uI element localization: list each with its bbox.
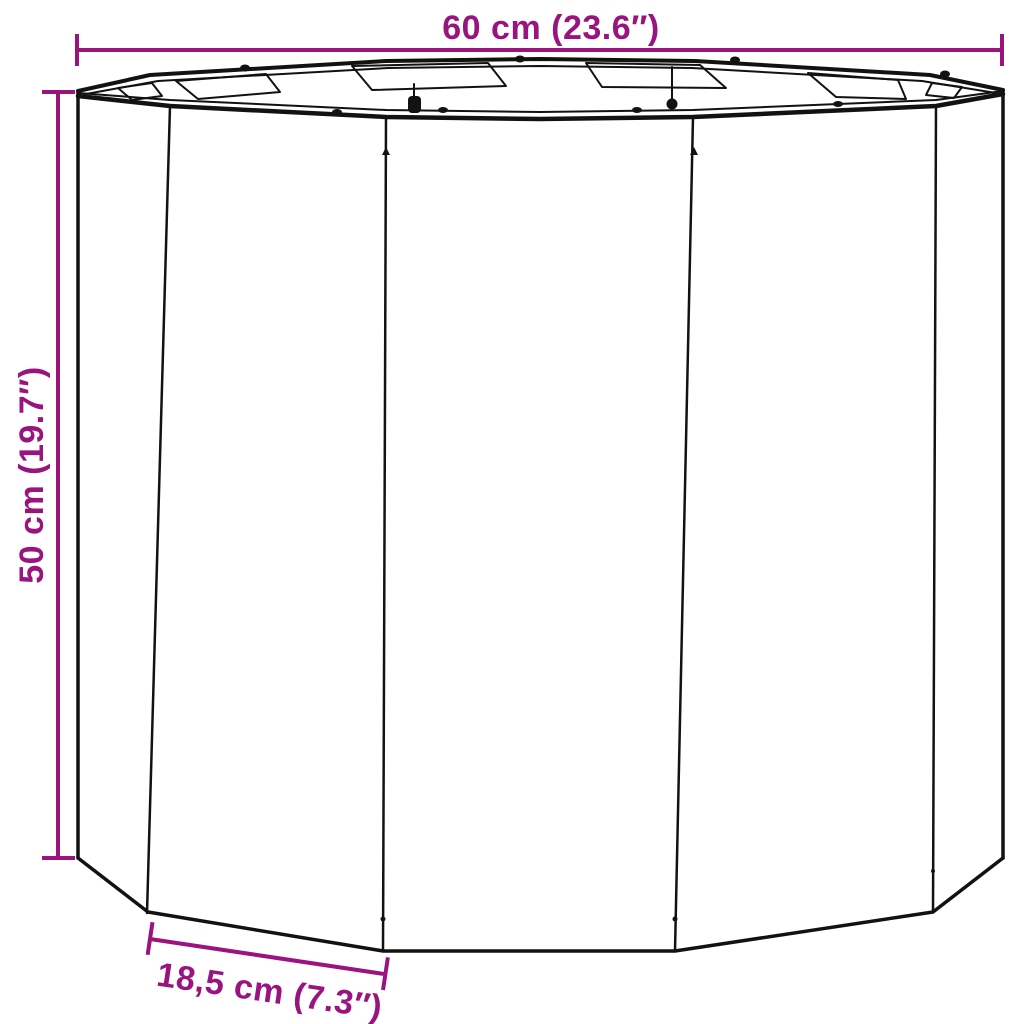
wing-bolt [667,99,678,110]
panel-dimension-label: 18,5 cm (7.3″) [154,956,385,1024]
rim-bolt [515,56,525,63]
panel-dimension-tick-right [383,957,388,990]
seam-rivet [673,917,678,922]
height-dimension: 50 cm (19.7″) [13,92,75,858]
height-dimension-label: 50 cm (19.7″) [13,366,51,583]
clip-bracket [408,96,421,113]
planter [78,56,1003,952]
planter-line-drawing: 60 cm (23.6″) 50 cm (19.7″) 18,5 cm (7.3… [0,0,1024,1024]
seam-rivet [931,869,935,873]
product-dimension-diagram: 60 cm (23.6″) 50 cm (19.7″) 18,5 cm (7.3… [0,0,1024,1024]
rim-bolt [632,107,642,113]
rim-bolt [833,101,843,107]
width-dimension-label: 60 cm (23.6″) [442,9,659,47]
rim-bolt [940,71,950,78]
rim-bolt [332,109,342,115]
rim-bolt [438,107,448,113]
panel-dimension-tick-left [148,922,153,955]
rim-bolt [240,65,250,72]
planter-silhouette [78,59,1003,951]
seam-rivet [381,917,386,922]
rim-bolt [730,57,740,64]
